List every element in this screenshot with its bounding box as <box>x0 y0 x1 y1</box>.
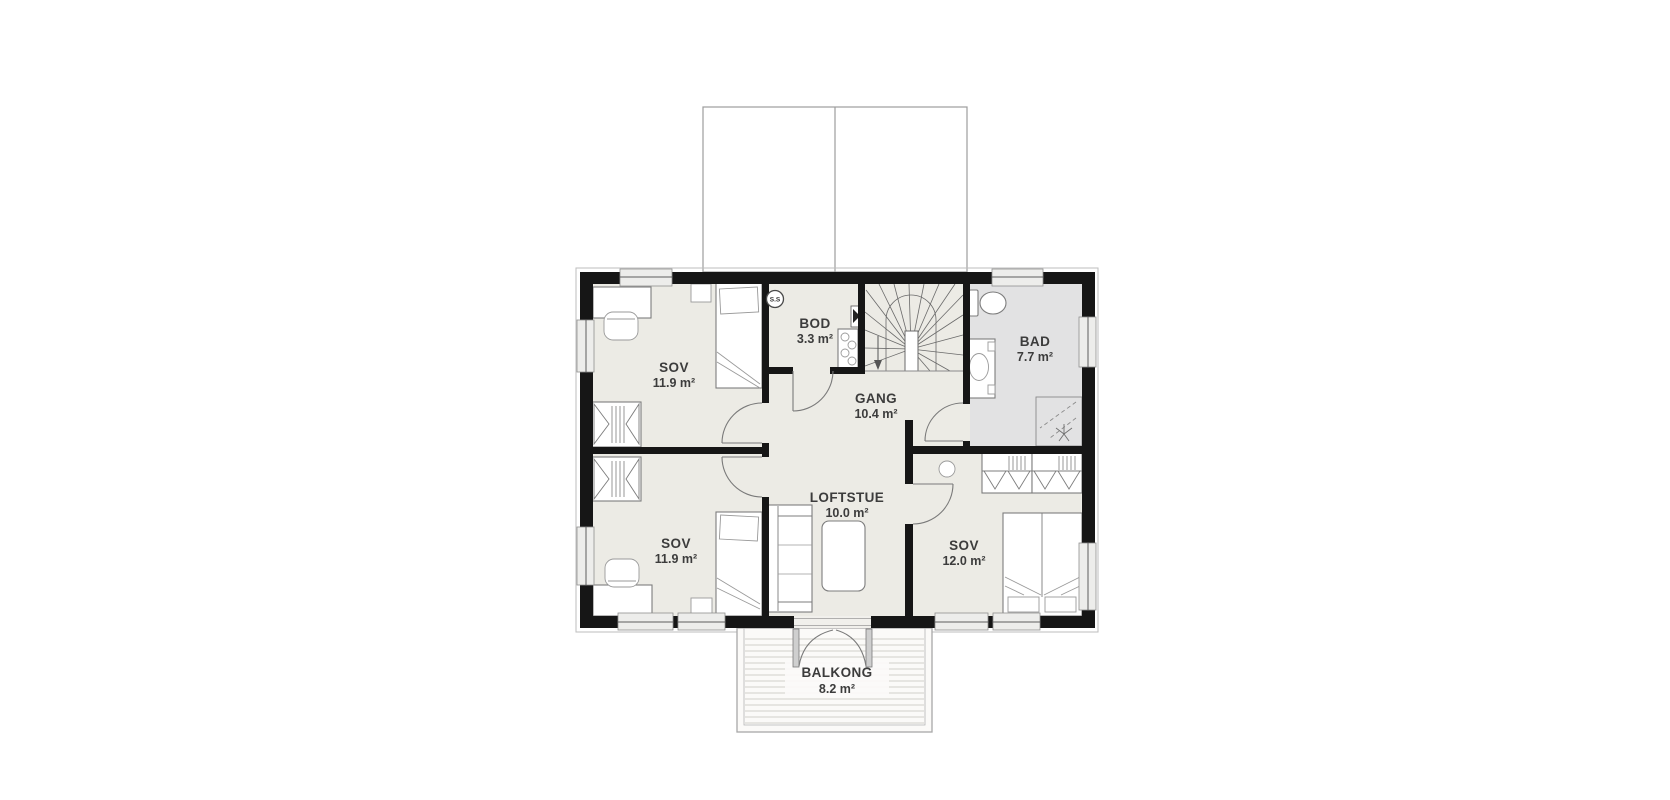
area-balkong: 8.2 m² <box>819 682 855 696</box>
window-bottom-sov3-a <box>935 613 988 630</box>
area-bod: 3.3 m² <box>797 332 833 346</box>
stair-shaft-badge: S.S <box>767 291 784 308</box>
window-top-bad <box>992 269 1043 286</box>
window-bottom-sov2-b <box>678 613 725 630</box>
label-balkong: BALKONG <box>801 665 872 680</box>
wall-center-vertical-lower <box>762 497 769 616</box>
wardrobe <box>982 453 1032 493</box>
stair-newel <box>905 331 918 371</box>
desk-chair <box>605 559 639 587</box>
toilet-icon <box>969 290 1006 316</box>
window-left-sov2 <box>577 527 594 585</box>
wardrobe <box>592 402 641 447</box>
dormer-roof-outline <box>703 107 967 272</box>
bed-pillow <box>719 287 758 314</box>
area-loftstue: 10.0 m² <box>825 506 868 520</box>
balcony <box>737 628 932 732</box>
label-gang: GANG <box>855 391 897 406</box>
label-sov-bottom-left: SOV <box>661 536 691 551</box>
label-bod: BOD <box>799 316 830 331</box>
balcony-door-threshold <box>794 616 871 628</box>
window-bottom-sov3-b <box>993 613 1040 630</box>
area-sov-bottom-right: 12.0 m² <box>942 554 985 568</box>
bed-double <box>1003 513 1082 616</box>
balcony-door-leaf-right <box>866 629 872 667</box>
window-right-bad <box>1079 317 1096 367</box>
balcony-door-leaf-left <box>793 629 799 667</box>
wall-bad-sov-divider <box>905 446 1082 454</box>
sink-vanity-icon <box>967 339 995 398</box>
wall-stairs-bad <box>963 284 970 404</box>
label-sov-bottom-right: SOV <box>949 538 979 553</box>
floor-plan-svg: SOV 11.9 m² BOD 3.3 m² BAD 7.7 m² GANG 1… <box>0 0 1670 800</box>
window-right-sov3 <box>1079 543 1096 610</box>
area-sov-top-left: 11.9 m² <box>653 376 695 390</box>
wall-bod-bottom-a <box>768 367 793 374</box>
wall-gang-sov-upper <box>905 420 913 484</box>
desk-chair <box>604 312 638 340</box>
wardrobe <box>592 457 641 501</box>
nightstand <box>691 284 711 302</box>
wall-gang-sov-lower <box>905 524 913 616</box>
sofa <box>768 505 812 612</box>
storage-shelf <box>838 329 858 369</box>
area-gang: 10.4 m² <box>854 407 897 421</box>
label-loftstue: LOFTSTUE <box>810 490 884 505</box>
wall-bod-stairs <box>858 284 865 374</box>
coffee-table <box>822 521 865 591</box>
badge-text: S.S <box>770 297 781 304</box>
window-top-sov1 <box>620 269 672 286</box>
desk <box>593 585 652 616</box>
wardrobe <box>1032 453 1082 493</box>
label-sov-top-left: SOV <box>659 360 689 375</box>
area-bad: 7.7 m² <box>1017 350 1053 364</box>
window-left-sov1 <box>577 320 594 372</box>
floor-plan-canvas: SOV 11.9 m² BOD 3.3 m² BAD 7.7 m² GANG 1… <box>0 0 1670 800</box>
label-bad: BAD <box>1020 334 1050 349</box>
ceiling-point-icon <box>939 461 955 477</box>
bed-pillow <box>719 515 758 541</box>
wall-left-rooms-divider <box>593 447 769 454</box>
window-bottom-sov2-a <box>618 613 673 630</box>
area-sov-bottom-left: 11.9 m² <box>655 552 697 566</box>
